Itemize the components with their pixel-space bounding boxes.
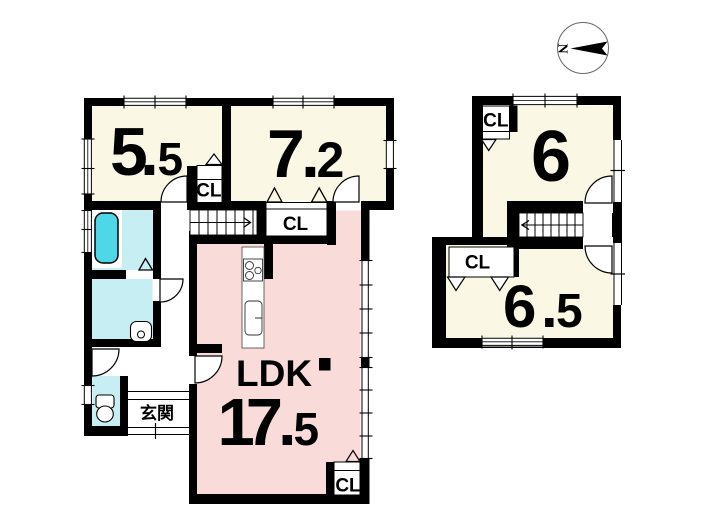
svg-text:N: N bbox=[555, 43, 570, 53]
svg-text:5: 5 bbox=[158, 133, 184, 185]
svg-text:玄関: 玄関 bbox=[140, 403, 174, 423]
svg-text:6: 6 bbox=[503, 273, 536, 340]
svg-text:CL: CL bbox=[483, 111, 509, 132]
svg-text:5: 5 bbox=[294, 403, 320, 455]
svg-text:5: 5 bbox=[556, 285, 583, 338]
svg-text:CL: CL bbox=[465, 253, 491, 274]
svg-text:17: 17 bbox=[218, 385, 281, 460]
svg-text:2: 2 bbox=[317, 132, 345, 188]
svg-text:6: 6 bbox=[531, 117, 571, 197]
svg-text:CL: CL bbox=[196, 181, 222, 202]
svg-text:.: . bbox=[140, 114, 159, 190]
svg-text:CL: CL bbox=[283, 214, 309, 235]
svg-text:CL: CL bbox=[335, 476, 361, 497]
svg-text:7: 7 bbox=[267, 116, 305, 192]
